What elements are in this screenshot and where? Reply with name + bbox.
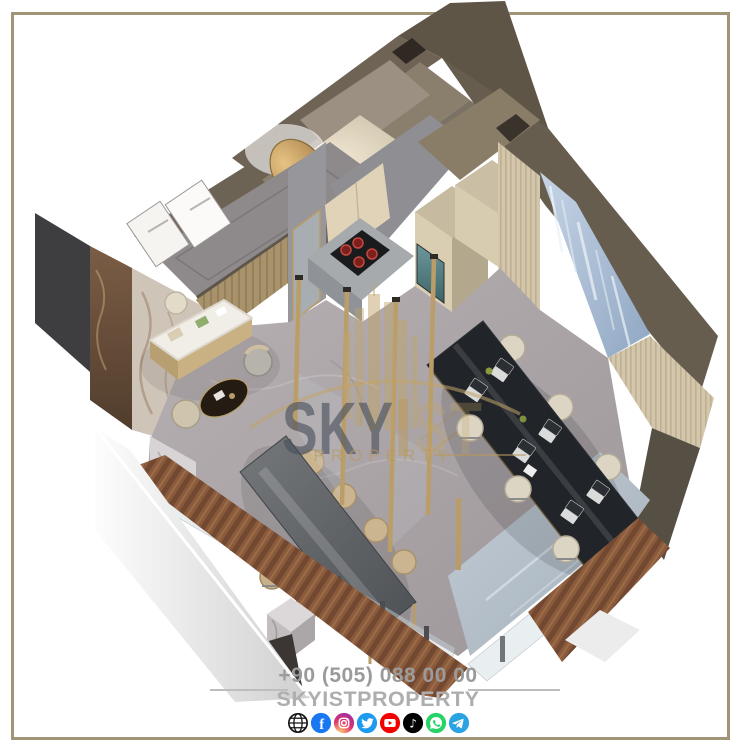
gold-glass-post [456, 498, 461, 570]
plant [486, 368, 493, 375]
office-3d-render [0, 0, 756, 756]
dark-exterior-wall [35, 213, 90, 372]
executive-chair [165, 292, 187, 314]
guest-armchair-2 [172, 400, 200, 428]
poster-canvas: SKYST PROPERTY +90 (505) 088 00 00 SKYIS… [0, 0, 756, 756]
plant [520, 416, 527, 423]
